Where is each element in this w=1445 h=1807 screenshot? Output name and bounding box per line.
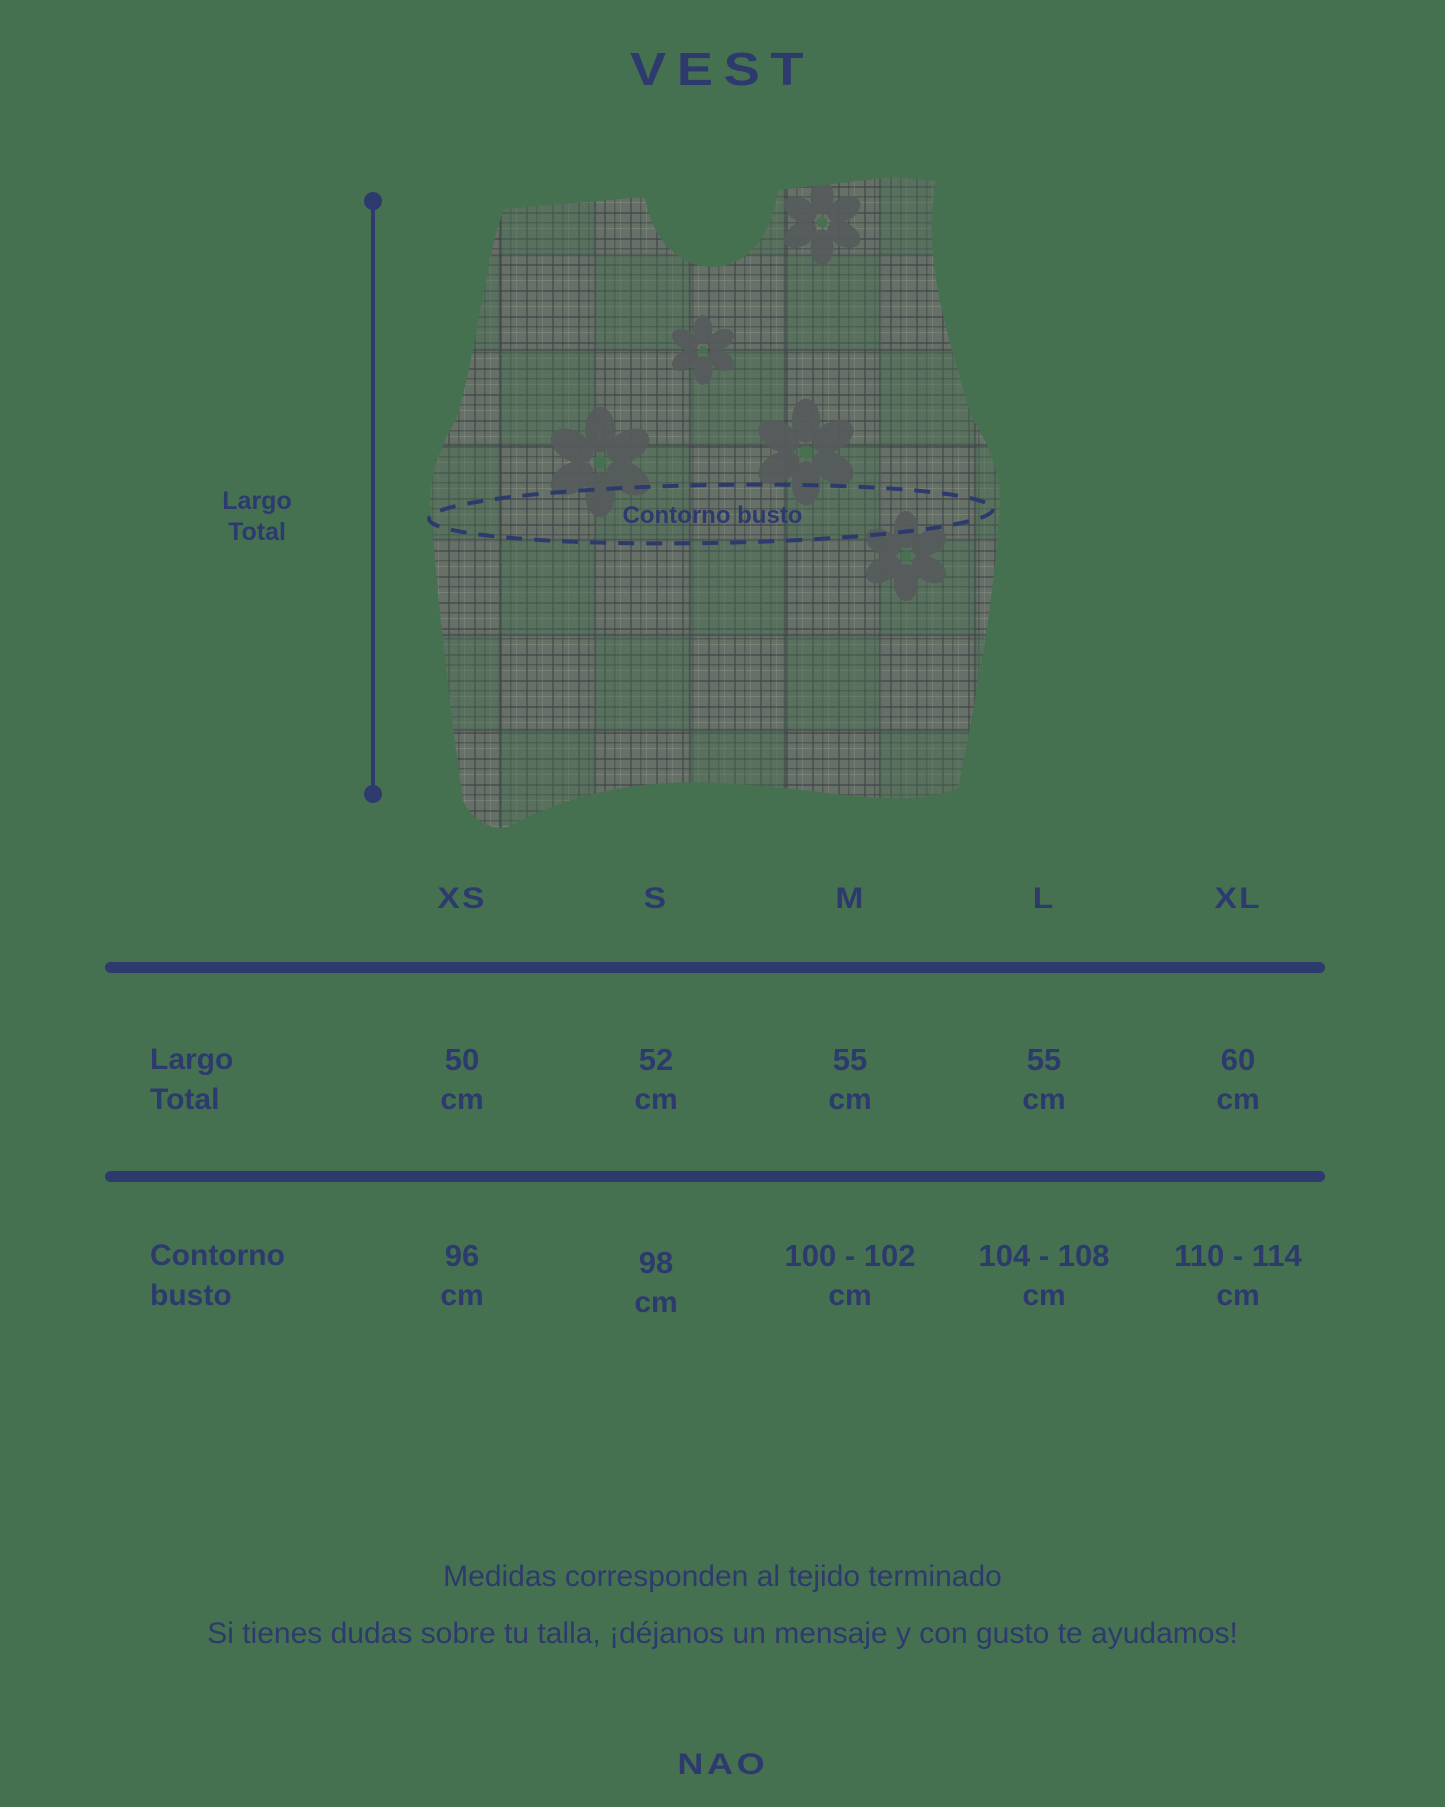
size-header-m: M [753, 878, 947, 920]
size-header-xl: XL [1141, 878, 1335, 920]
length-measure-line [364, 192, 382, 803]
measurement-value: 110 - 114 [1141, 1236, 1335, 1276]
row-label-largo-total: Largo Total [95, 1040, 365, 1120]
measurement-unit: cm [753, 1080, 947, 1120]
measurement-cell: 110 - 114 cm [1141, 1236, 1335, 1316]
measurement-cell: 98 cm [559, 1243, 753, 1323]
measurement-value: 55 [947, 1040, 1141, 1080]
measurement-value: 55 [753, 1040, 947, 1080]
measurement-cell: 55 cm [947, 1040, 1141, 1120]
size-header-row: XS S M L XL [95, 878, 1335, 920]
measurement-unit: cm [947, 1276, 1141, 1316]
measurement-value: 52 [559, 1040, 753, 1080]
page-title-text: VEST [630, 42, 814, 96]
measurement-cell: 52 cm [559, 1040, 753, 1120]
measurement-unit: cm [559, 1080, 753, 1120]
measurement-cell: 60 cm [1141, 1040, 1335, 1120]
measurement-cell: 96 cm [365, 1236, 559, 1316]
divider-bar-bottom [105, 1171, 1325, 1182]
length-label-line1: Largo [198, 486, 316, 517]
measurement-value: 98 [559, 1243, 753, 1283]
size-guide-page: { "colors": { "background": "#467150", "… [0, 0, 1445, 1807]
row-largo-total: Largo Total 50 cm 52 cm 55 cm 55 cm 60 c… [95, 1040, 1335, 1120]
bust-measure-label: Contorno busto [575, 502, 850, 530]
row-label-contorno-busto: Contorno busto [95, 1236, 365, 1316]
measurement-value: 104 - 108 [947, 1236, 1141, 1276]
brand-logo-text: NAO [677, 1748, 768, 1782]
measurement-cell: 100 - 102 cm [753, 1236, 947, 1316]
measurement-value: 60 [1141, 1040, 1335, 1080]
footer-note-2: Si tienes dudas sobre tu talla, ¡déjanos… [0, 1617, 1445, 1651]
brand-logo: NAO [0, 1748, 1445, 1782]
measurement-unit: cm [559, 1283, 753, 1323]
size-header-l: L [947, 878, 1141, 920]
measurement-unit: cm [1141, 1080, 1335, 1120]
measurement-value: 50 [365, 1040, 559, 1080]
measurement-unit: cm [753, 1276, 947, 1316]
measurement-value: 96 [365, 1236, 559, 1276]
row-contorno-busto: Contorno busto 96 cm 98 cm 100 - 102 cm … [95, 1236, 1335, 1316]
length-measure-endpoint-bottom [364, 785, 382, 803]
length-label-line2: Total [198, 517, 316, 548]
measurement-unit: cm [947, 1080, 1141, 1120]
length-measure-endpoint-top [364, 192, 382, 210]
measurement-cell: 50 cm [365, 1040, 559, 1120]
size-header-s: S [559, 878, 753, 920]
divider-bar-top [105, 962, 1325, 973]
size-header-xs: XS [365, 878, 559, 920]
size-header-spacer [95, 878, 365, 920]
measurement-cell: 104 - 108 cm [947, 1236, 1141, 1316]
page-title: VEST [0, 42, 1445, 96]
measurement-unit: cm [365, 1276, 559, 1316]
length-measure-label: Largo Total [198, 486, 316, 548]
measurement-unit: cm [365, 1080, 559, 1120]
measurement-cell: 55 cm [753, 1040, 947, 1120]
measurement-unit: cm [1141, 1276, 1335, 1316]
measurement-value: 100 - 102 [753, 1236, 947, 1276]
footer-note-1: Medidas corresponden al tejido terminado [0, 1560, 1445, 1594]
